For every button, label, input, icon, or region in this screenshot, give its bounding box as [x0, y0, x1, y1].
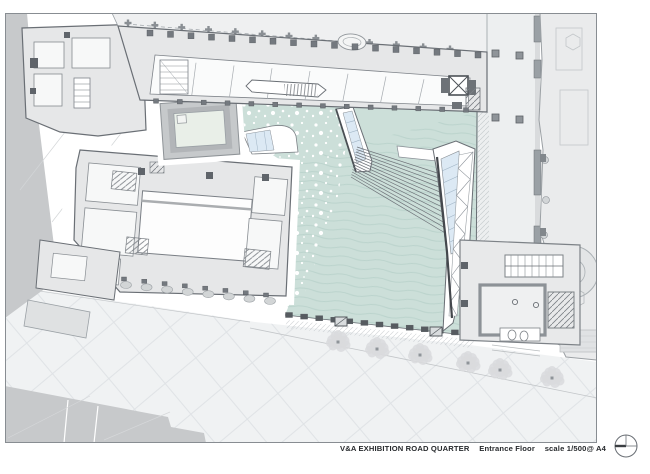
staircase: [74, 78, 90, 108]
west-staircase: [160, 60, 188, 94]
entrance-hall: [480, 285, 545, 335]
entrance-stair: [505, 255, 563, 277]
exhibition-road-entrance-building: [460, 240, 580, 356]
project-title: V&A EXHIBITION ROAD QUARTER: [340, 444, 470, 453]
title-block: V&A EXHIBITION ROAD QUARTER Entrance Flo…: [340, 444, 606, 453]
tactile-paving-strip: [477, 112, 489, 242]
north-range-building: [112, 13, 487, 112]
north-orientation-icon: [615, 435, 637, 457]
drawing-scale: scale 1/500@ A4: [545, 444, 606, 453]
drawing-sheet: V&A EXHIBITION ROAD QUARTER Entrance Flo…: [0, 0, 650, 474]
stair-core-hatched: [548, 292, 574, 328]
road-median: [535, 13, 540, 245]
drawing-name: Entrance Floor: [479, 444, 535, 453]
floor-plan-canvas: [0, 0, 650, 474]
road-end-stair: [466, 88, 480, 110]
